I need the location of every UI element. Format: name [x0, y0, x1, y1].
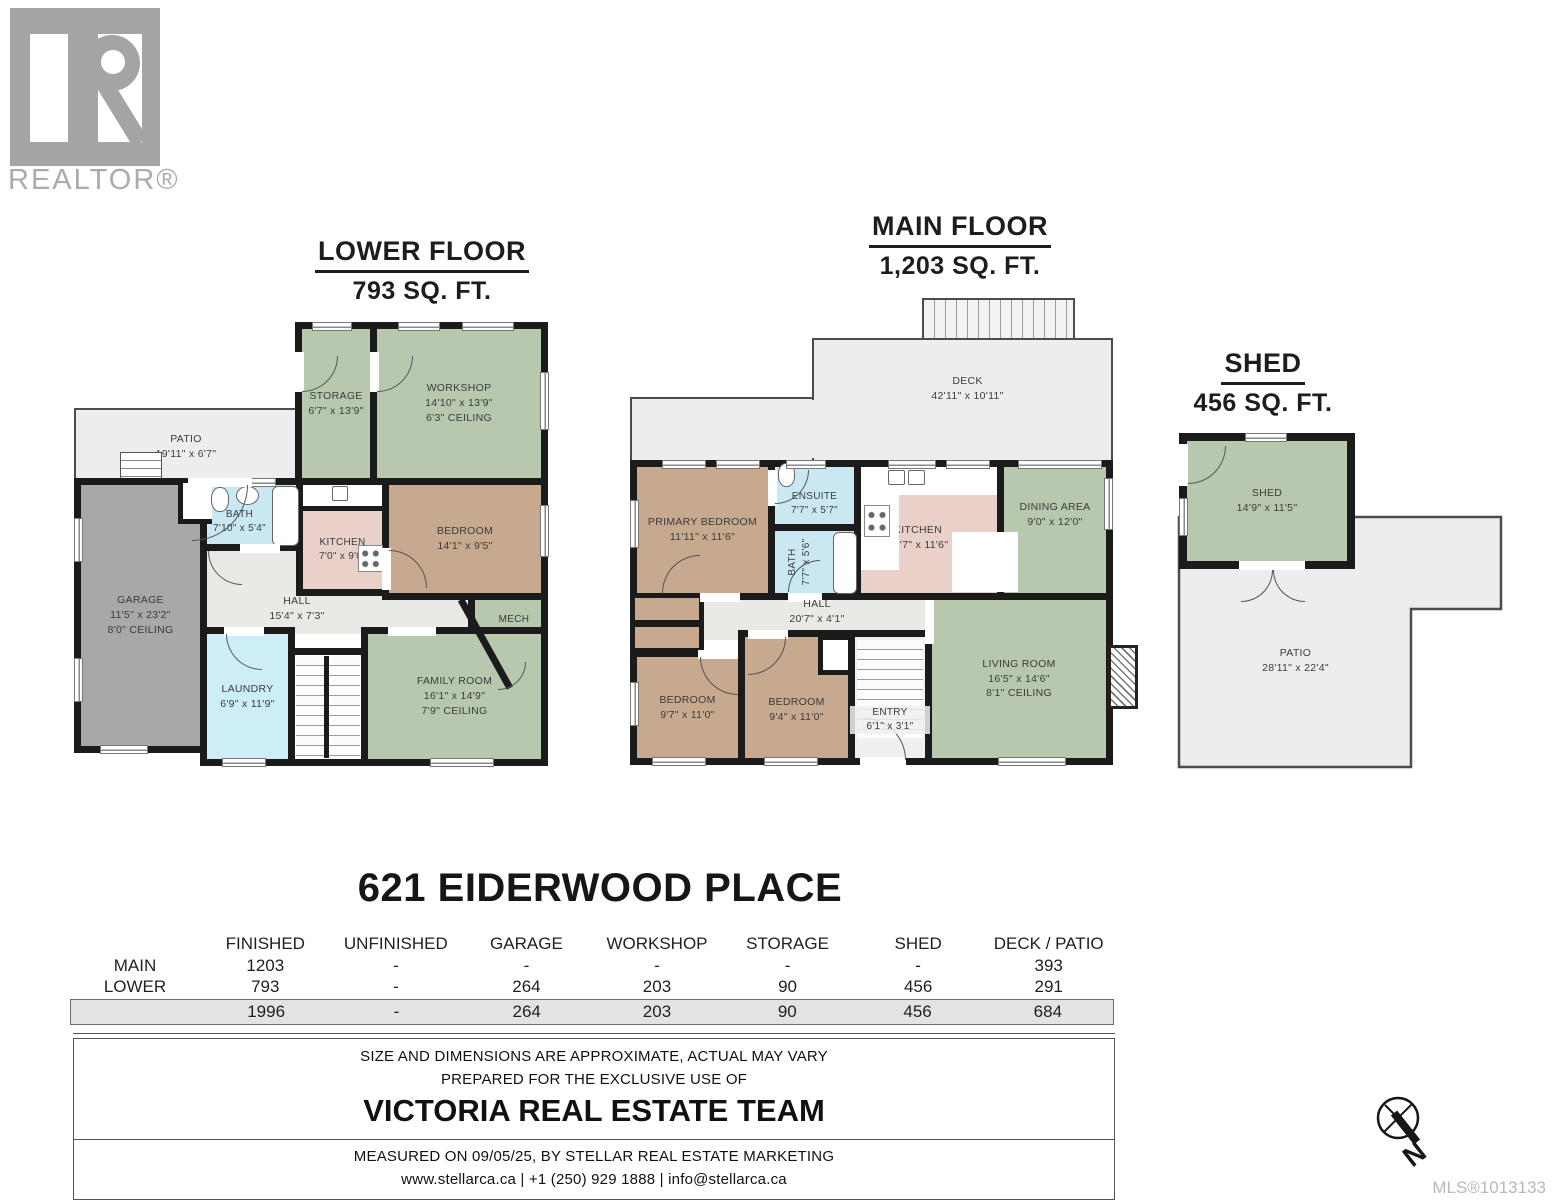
table-cell: -: [331, 977, 462, 997]
table-cell: 264: [461, 977, 592, 997]
table-cell: -: [722, 956, 853, 976]
compass-north-icon: N: [1368, 1086, 1452, 1176]
window: [652, 757, 706, 766]
window: [312, 322, 352, 331]
table-row-main: MAIN 1203 - - - - - 393: [70, 955, 1114, 976]
room-name: LAUNDRY: [220, 682, 275, 697]
lower-floor-area: 793 SQ. FT.: [282, 277, 562, 306]
lower-floor-name: LOWER FLOOR: [315, 236, 529, 273]
table-cell: 90: [722, 977, 853, 997]
kitchen-sink-icon: [908, 470, 925, 485]
door-gap: [388, 627, 436, 636]
window: [630, 500, 639, 548]
room-dims: 42'11" x 10'11": [880, 389, 1055, 404]
door-gap: [700, 593, 740, 602]
kitchen-sink-icon: [888, 470, 905, 485]
kitchen-peninsula: [952, 532, 1018, 592]
window: [540, 372, 549, 430]
shed-area: 456 SQ. FT.: [1143, 389, 1383, 418]
window: [540, 505, 549, 557]
bathtub-icon: [833, 532, 857, 594]
window: [398, 322, 440, 331]
room-workshop: WORKSHOP 14'10" x 13'9" 6'3" CEILING: [370, 322, 548, 485]
room-label: STORAGE 6'7" x 13'9": [308, 389, 363, 418]
prepared-for-line: PREPARED FOR THE EXCLUSIVE USE OF: [74, 1069, 1114, 1092]
table-row-total: 1996 - 264 203 90 456 684: [70, 999, 1114, 1025]
room-label: BEDROOM 9'7" x 11'0": [659, 693, 715, 722]
disclaimer-line: SIZE AND DIMENSIONS ARE APPROXIMATE, ACT…: [74, 1046, 1114, 1069]
room-dims: 28'11" x 22'4": [1238, 661, 1353, 676]
row-label: LOWER: [70, 977, 200, 997]
room-ceiling: 8'1" CEILING: [982, 686, 1055, 701]
room-name: WORKSHOP: [425, 381, 493, 396]
room-label: BEDROOM 14'1" x 9'5": [437, 524, 493, 553]
realtor-logo-icon: [10, 8, 160, 166]
room-dims: 7'7" x 5'7": [791, 504, 838, 518]
window: [100, 745, 148, 754]
table-header-workshop: WORKSHOP: [592, 934, 723, 954]
window: [998, 757, 1066, 766]
table-header-storage: STORAGE: [722, 934, 853, 954]
window: [888, 460, 936, 469]
table-cell: -: [853, 956, 984, 976]
window: [222, 758, 266, 767]
shed-patio-label: PATIO 28'11" x 22'4": [1238, 646, 1353, 675]
room-storage: STORAGE 6'7" x 13'9": [295, 322, 377, 485]
property-address: 621 EIDERWOOD PLACE: [250, 866, 950, 911]
door-gap: [1179, 444, 1188, 486]
table-cell: 203: [592, 977, 723, 997]
window: [74, 518, 83, 562]
area-summary-table: FINISHED UNFINISHED GARAGE WORKSHOP STOR…: [70, 932, 1114, 1025]
table-cell: 393: [983, 956, 1114, 976]
room-dims: 6'1" x 3'1": [850, 720, 930, 734]
room-label: BEDROOM 9'4" x 11'0": [768, 695, 824, 724]
table-cell: 291: [983, 977, 1114, 997]
entry-label: ENTRY 6'1" x 3'1": [850, 706, 930, 734]
table-cell: 793: [200, 977, 331, 997]
room-label: PATIO 19'11" x 6'7": [156, 432, 217, 461]
room-dims: 16'5" x 14'6": [982, 672, 1055, 687]
table-cell: -: [592, 956, 723, 976]
room-name: BEDROOM: [437, 524, 493, 539]
room-dims: 14'9" x 11'5": [1237, 501, 1298, 516]
room-name: STORAGE: [308, 389, 363, 404]
room-patio-lower: PATIO 19'11" x 6'7": [74, 408, 298, 485]
table-cell: 684: [983, 1002, 1113, 1022]
room-living: LIVING ROOM 16'5" x 14'6" 8'1" CEILING: [925, 593, 1113, 765]
floorplan-sheet: REALTOR® LOWER FLOOR 793 SQ. FT. MAIN FL…: [0, 0, 1552, 1200]
room-name: HALL: [222, 594, 372, 609]
footer-credit-box: SIZE AND DIMENSIONS ARE APPROXIMATE, ACT…: [73, 1033, 1115, 1200]
measured-line: MEASURED ON 09/05/25, BY STELLAR REAL ES…: [74, 1146, 1114, 1169]
door-gap: [240, 544, 280, 553]
bath-main-label: BATH 7'7" x 5'6": [772, 534, 828, 590]
main-floor-title: MAIN FLOOR 1,203 SQ. FT.: [820, 211, 1100, 281]
room-label: PRIMARY BEDROOM 11'11" x 11'6": [648, 515, 757, 544]
room-dims: 9'0" x 12'0": [1020, 515, 1091, 530]
compass-label: N: [1397, 1136, 1432, 1173]
room-name: BEDROOM: [659, 693, 715, 708]
window: [786, 460, 826, 469]
contact-line: www.stellarca.ca | +1 (250) 929 1888 | i…: [74, 1169, 1114, 1192]
room-label: FAMILY ROOM 16'1" x 14'9" 7'9" CEILING: [417, 674, 492, 718]
table-row-lower: LOWER 793 - 264 203 90 456 291: [70, 976, 1114, 997]
room-dims: 6'9" x 11'9": [220, 697, 275, 712]
room-label: SHED 14'9" x 11'5": [1237, 486, 1298, 515]
realtor-wordmark: REALTOR®: [8, 164, 193, 197]
room-name: LIVING ROOM: [982, 657, 1055, 672]
window: [1179, 498, 1188, 536]
window: [946, 460, 990, 469]
room-primary-bedroom: PRIMARY BEDROOM 11'11" x 11'6": [630, 460, 775, 600]
row-label: MAIN: [70, 956, 200, 976]
window: [1104, 478, 1113, 530]
shed-title: SHED 456 SQ. FT.: [1143, 348, 1383, 418]
table-cell: 264: [462, 1002, 592, 1022]
room-dims: 9'7" x 11'0": [659, 708, 715, 723]
room-ceiling: 7'9" CEILING: [417, 704, 492, 719]
stove-icon: [864, 505, 890, 537]
table-cell: 456: [852, 1002, 982, 1022]
room-name: PATIO: [156, 432, 217, 447]
table-cell: 90: [722, 1002, 852, 1022]
table-cell: 1996: [201, 1002, 331, 1022]
table-cell: 203: [592, 1002, 722, 1022]
stairs-divider: [324, 656, 329, 758]
window: [630, 682, 639, 726]
hall-main-label: HALL 20'7" x 4'1": [742, 597, 892, 626]
room-name: DECK: [880, 374, 1055, 389]
hall-lower-label: HALL 15'4" x 7'3": [222, 594, 372, 623]
room-name: SHED: [1237, 486, 1298, 501]
room-name: DINING AREA: [1020, 500, 1091, 515]
team-name: VICTORIA REAL ESTATE TEAM: [74, 1093, 1114, 1129]
hall-closet: [630, 593, 704, 625]
table-header-row: FINISHED UNFINISHED GARAGE WORKSHOP STOR…: [70, 932, 1114, 955]
window: [462, 322, 514, 331]
room-name: FAMILY ROOM: [417, 674, 492, 689]
room-label: LIVING ROOM 16'5" x 14'6" 8'1" CEILING: [982, 657, 1055, 701]
kitchen-sink-icon: [332, 486, 348, 501]
room-dims: 14'10" x 13'9": [425, 396, 493, 411]
room-dims: 19'11" x 6'7": [156, 447, 217, 462]
table-cell: 456: [853, 977, 984, 997]
room-family: FAMILY ROOM 16'1" x 14'9" 7'9" CEILING: [361, 627, 548, 766]
room-label: DINING AREA 9'0" x 12'0": [1020, 500, 1091, 529]
room-label: LAUNDRY 6'9" x 11'9": [220, 682, 275, 711]
table-header-finished: FINISHED: [200, 934, 331, 954]
table-header-garage: GARAGE: [461, 934, 592, 954]
room-dims: 16'1" x 14'9": [417, 689, 492, 704]
room-ceiling: 8'0" CEILING: [108, 623, 174, 638]
window: [430, 758, 494, 767]
window: [716, 460, 760, 469]
stove-icon: [358, 545, 383, 572]
table-header-deck-patio: DECK / PATIO: [983, 934, 1114, 954]
room-name: BEDROOM: [768, 695, 824, 710]
table-cell: -: [331, 956, 462, 976]
room-dims: 11'11" x 11'6": [648, 530, 757, 545]
room-ceiling: 6'3" CEILING: [425, 411, 493, 426]
double-door-gap: [1239, 561, 1305, 570]
table-cell: -: [461, 956, 592, 976]
deck-stairs: [922, 298, 1075, 340]
room-dims: 20'7" x 4'1": [742, 612, 892, 627]
sliding-door: [1018, 460, 1102, 469]
room-name: GARAGE: [108, 593, 174, 608]
room-label: GARAGE 11'5" x 23'2" 8'0" CEILING: [108, 593, 174, 637]
mls-number: MLS®1013133: [1432, 1178, 1546, 1198]
room-dims: 15'4" x 7'3": [222, 609, 372, 624]
deck-left: [630, 397, 814, 462]
room-name: PRIMARY BEDROOM: [648, 515, 757, 530]
window: [1245, 433, 1287, 442]
room-dims: 6'7" x 13'9": [308, 404, 363, 419]
room-dims: 9'4" x 11'0": [768, 710, 824, 725]
table-header-unfinished: UNFINISHED: [331, 934, 462, 954]
room-dims: 14'1" x 9'5": [437, 539, 493, 554]
window: [74, 658, 83, 702]
main-floor-area: 1,203 SQ. FT.: [820, 252, 1100, 281]
hall-closet: [630, 622, 704, 653]
room-name: HALL: [742, 597, 892, 612]
table-cell: -: [331, 1002, 461, 1022]
lower-floor-title: LOWER FLOOR 793 SQ. FT.: [282, 236, 562, 306]
shed-name: SHED: [1221, 348, 1304, 385]
table-header-shed: SHED: [853, 934, 984, 954]
window: [764, 757, 818, 766]
room-name: PATIO: [1238, 646, 1353, 661]
deck-seam-cover: [810, 400, 818, 458]
fireplace: [1108, 645, 1138, 709]
opening-gap: [925, 600, 934, 644]
deck-label: DECK 42'11" x 10'11": [880, 374, 1055, 403]
bathtub-icon: [272, 486, 299, 546]
main-floor-name: MAIN FLOOR: [869, 211, 1051, 248]
room-dims: 11'5" x 23'2": [108, 608, 174, 623]
room-label: WORKSHOP 14'10" x 13'9" 6'3" CEILING: [425, 381, 493, 425]
room-dims: 7'7" x 5'6": [800, 534, 814, 590]
room-name: ENTRY: [850, 706, 930, 720]
room-name: BATH: [786, 534, 800, 590]
table-cell: 1203: [200, 956, 331, 976]
window: [662, 460, 706, 469]
